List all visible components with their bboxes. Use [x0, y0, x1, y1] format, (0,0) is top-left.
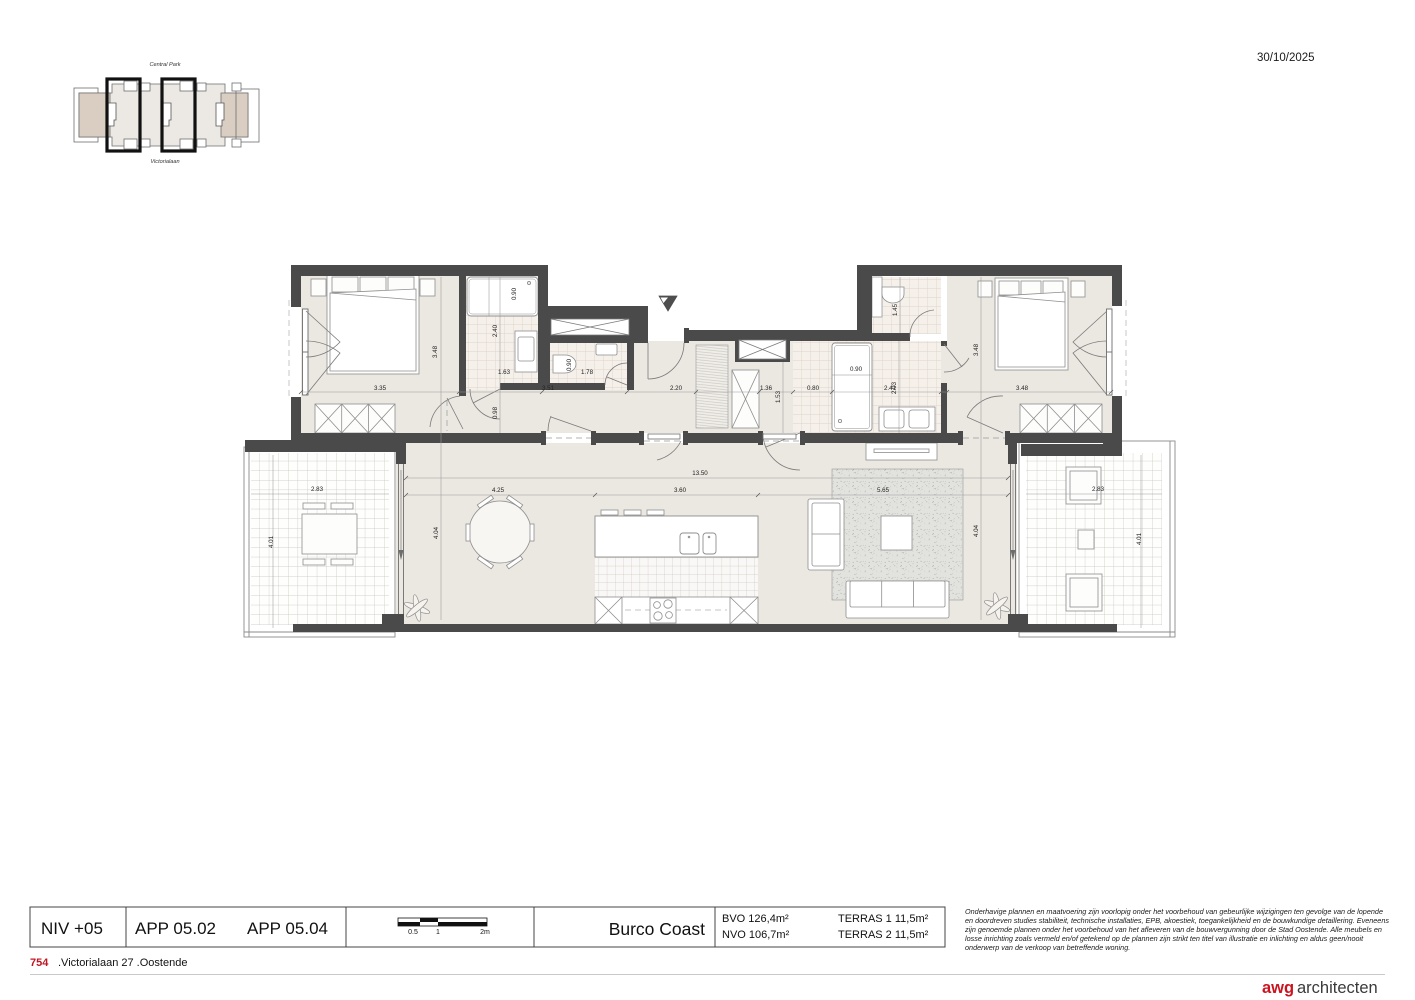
svg-text:2.20: 2.20	[670, 385, 683, 392]
svg-text:0.98: 0.98	[492, 406, 499, 419]
svg-text:30/10/2025: 30/10/2025	[1257, 52, 1315, 64]
svg-text:2.83: 2.83	[311, 486, 324, 493]
svg-text:2.03: 2.03	[891, 381, 898, 394]
svg-text:0.5: 0.5	[408, 929, 418, 936]
svg-text:1.36: 1.36	[760, 385, 773, 392]
svg-text:0.90: 0.90	[566, 358, 573, 371]
svg-text:4.01: 4.01	[1136, 532, 1143, 545]
svg-text:APP 05.02: APP 05.02	[135, 919, 216, 938]
svg-text:awg: awg	[1262, 979, 1294, 997]
svg-text:4.01: 4.01	[268, 535, 275, 548]
svg-text:4.04: 4.04	[433, 526, 440, 539]
svg-text:0.90: 0.90	[850, 366, 863, 373]
svg-text:en doordreven studies stabilit: en doordreven studies stabiliteit, techn…	[965, 916, 1389, 925]
svg-text:Victorialaan: Victorialaan	[150, 159, 179, 165]
svg-text:TERRAS 1 11,5m²: TERRAS 1 11,5m²	[838, 913, 929, 925]
svg-text:3.48: 3.48	[432, 345, 439, 358]
svg-text:1.78: 1.78	[581, 369, 594, 376]
svg-text:754: 754	[30, 957, 49, 969]
svg-text:.Victorialaan 27 .Oostende: .Victorialaan 27 .Oostende	[58, 957, 187, 969]
svg-text:3.35: 3.35	[374, 385, 387, 392]
svg-text:zijn genoemde plannen onder he: zijn genoemde plannen onder het voorbeho…	[964, 925, 1382, 934]
svg-text:1.45: 1.45	[892, 303, 899, 316]
svg-text:BVO 126,4m²: BVO 126,4m²	[722, 913, 789, 925]
svg-text:3.51: 3.51	[542, 385, 555, 392]
svg-text:0.90: 0.90	[511, 287, 518, 300]
svg-text:NIV +05: NIV +05	[41, 919, 103, 938]
svg-text:3.48: 3.48	[1016, 385, 1029, 392]
svg-text:2m: 2m	[480, 929, 490, 936]
svg-text:Burco Coast: Burco Coast	[609, 919, 705, 939]
svg-text:1: 1	[436, 929, 440, 936]
svg-text:onderwerp van de verkoop van b: onderwerp van de verkoop van betreffende…	[965, 943, 1130, 952]
svg-text:architecten: architecten	[1297, 979, 1378, 997]
svg-text:APP 05.04: APP 05.04	[247, 919, 328, 938]
svg-text:losse inrichting zoals vermeld: losse inrichting zoals vermeld en/of get…	[965, 934, 1364, 943]
svg-text:NVO 106,7m²: NVO 106,7m²	[722, 929, 790, 941]
svg-text:1.63: 1.63	[498, 369, 511, 376]
svg-text:TERRAS 2 11,5m²: TERRAS 2 11,5m²	[838, 929, 929, 941]
svg-text:3.60: 3.60	[674, 487, 687, 494]
svg-text:5.65: 5.65	[877, 487, 890, 494]
svg-text:3.48: 3.48	[973, 343, 980, 356]
svg-text:0.80: 0.80	[807, 385, 820, 392]
svg-text:2.83: 2.83	[1092, 486, 1105, 493]
svg-text:Central Park: Central Park	[149, 62, 181, 68]
svg-text:Onderhavige plannen en maatvoe: Onderhavige plannen en maatvoering zijn …	[965, 907, 1383, 916]
svg-text:1.53: 1.53	[775, 390, 782, 403]
svg-text:13.50: 13.50	[692, 470, 708, 477]
svg-text:2.40: 2.40	[492, 324, 499, 337]
svg-text:4.04: 4.04	[973, 524, 980, 537]
svg-text:4.25: 4.25	[492, 487, 505, 494]
